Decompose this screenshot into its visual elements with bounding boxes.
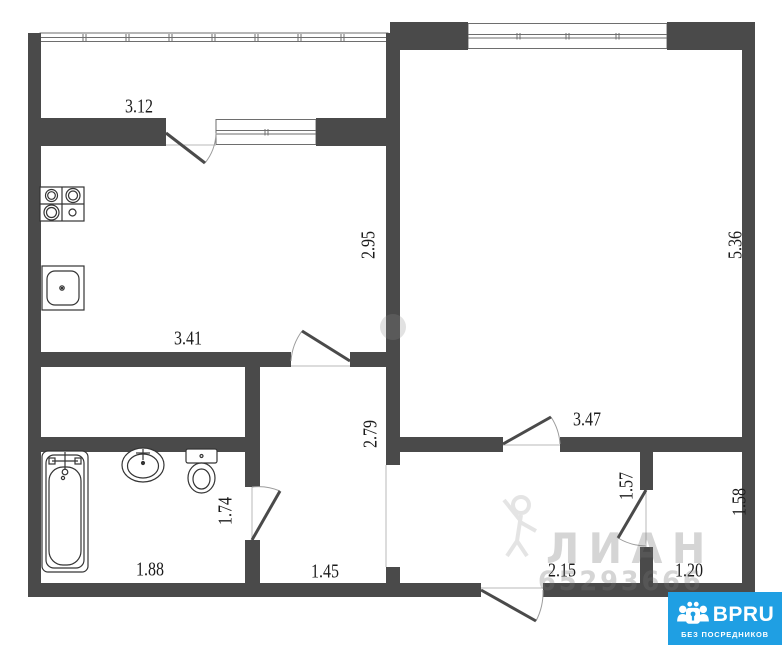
balcony-divider-left — [40, 118, 166, 146]
floor-plan-drawing — [0, 0, 782, 645]
living-room-door — [503, 417, 560, 444]
balcony-glazing-window — [40, 33, 388, 42]
dimension-living-width: 3.47 — [573, 409, 601, 432]
entrance-door — [481, 590, 543, 621]
storage-divider-top — [640, 452, 653, 490]
living-bottom-wall-left — [400, 437, 503, 452]
watermark-figure-icon — [504, 497, 536, 556]
entry-wall-stub — [386, 567, 400, 583]
bathtub-icon — [42, 451, 88, 572]
floor-plan: 3.12 2.95 5.36 3.41 2.79 3.47 1.74 1.57 … — [0, 0, 782, 645]
balcony-divider-right — [316, 118, 386, 146]
dimension-storage-height: 1.58 — [729, 488, 752, 516]
hall-left-wall-top — [245, 367, 260, 487]
living-top-wall-left — [390, 22, 468, 50]
dimension-bathroom-width: 1.88 — [136, 559, 164, 582]
living-top-wall-right — [667, 22, 755, 50]
kitchen-bottom-wall-stub — [350, 352, 386, 367]
dimension-entry-width: 2.15 — [548, 560, 576, 583]
balcony-door — [166, 133, 216, 163]
dimension-hall-height: 2.79 — [360, 420, 383, 448]
toilet-icon — [186, 449, 217, 493]
kitchen-window — [216, 120, 316, 145]
hall-left-wall-bottom — [245, 540, 260, 583]
people-lock-icon — [676, 600, 710, 628]
logo-tagline-text: БЕЗ ПОСРЕДНИКОВ — [681, 631, 769, 639]
dimension-hall-width: 1.45 — [311, 561, 339, 584]
outer-wall-bottom-left — [28, 583, 481, 597]
watermark-blob — [380, 314, 406, 340]
fixtures-layer — [40, 187, 217, 572]
dimension-storage-width: 1.20 — [675, 560, 703, 583]
bathroom-door — [252, 487, 280, 540]
stove-icon — [40, 187, 84, 221]
washbasin-icon — [122, 448, 164, 482]
doors-layer — [166, 133, 646, 621]
logo-brand-text: BPRU — [713, 604, 775, 625]
living-bottom-wall-right — [560, 437, 755, 452]
bpru-logo: BPRU БЕЗ ПОСРЕДНИКОВ — [668, 592, 782, 645]
dimension-kitchen-width: 3.41 — [174, 328, 202, 351]
dimension-bathroom-height: 1.74 — [215, 497, 238, 525]
dimension-balcony-width: 3.12 — [125, 96, 153, 119]
living-left-wall — [386, 33, 400, 465]
kitchen-bottom-wall — [28, 352, 291, 367]
outer-wall-left — [28, 33, 41, 597]
dimension-living-height: 5.36 — [725, 231, 748, 259]
dimension-kitchen-height: 2.95 — [358, 231, 381, 259]
living-room-window — [468, 24, 667, 49]
dimension-closet-height: 1.57 — [616, 472, 639, 500]
kitchen-door — [291, 331, 350, 361]
kitchen-sink-icon — [42, 266, 84, 310]
storage-divider-bottom — [640, 547, 653, 583]
